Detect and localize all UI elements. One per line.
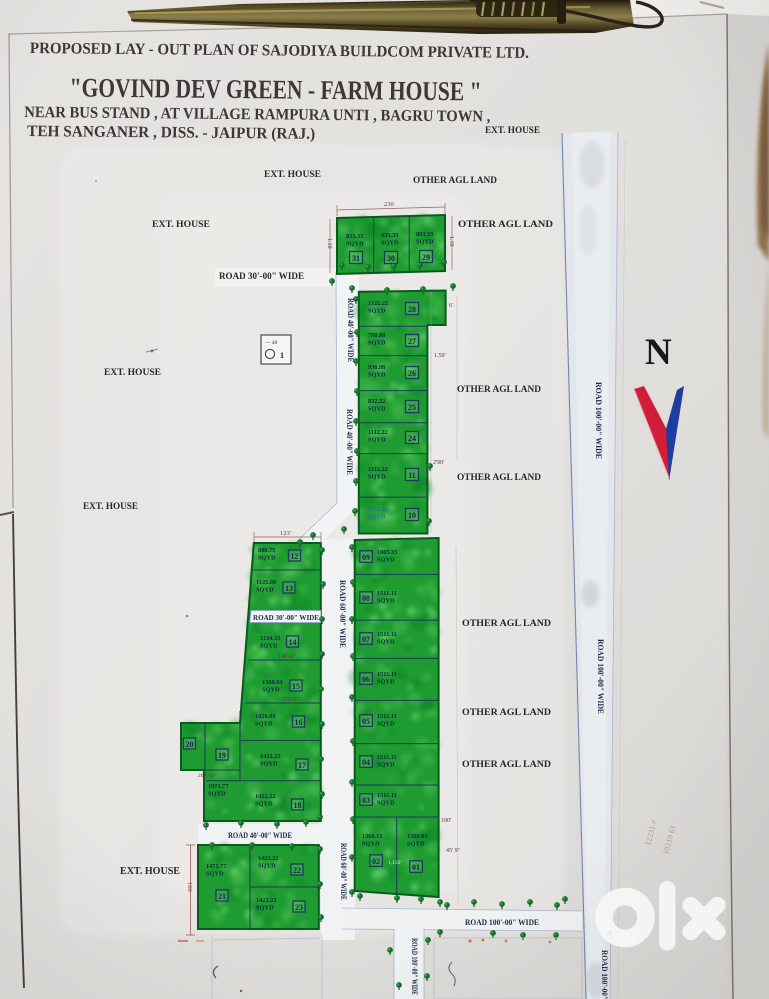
svg-text:INDIA: INDIA: [688, 944, 727, 953]
